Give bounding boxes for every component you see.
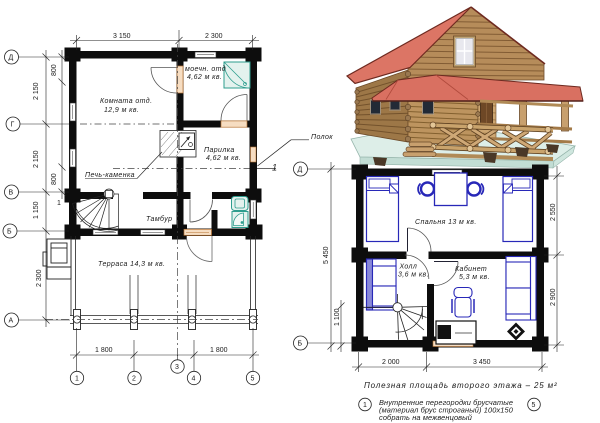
svg-text:1 150: 1 150	[33, 201, 40, 219]
svg-text:4,62 м кв.: 4,62 м кв.	[206, 155, 241, 162]
svg-text:Д: Д	[298, 167, 303, 174]
svg-text:3 150: 3 150	[113, 33, 131, 40]
svg-text:1: 1	[75, 376, 79, 383]
svg-text:Г: Г	[11, 122, 15, 129]
svg-text:1: 1	[57, 200, 61, 207]
svg-text:Б: Б	[7, 229, 12, 236]
svg-text:В: В	[9, 190, 14, 197]
svg-text:Полок: Полок	[311, 134, 333, 141]
svg-text:А: А	[9, 318, 14, 325]
svg-text:Б: Б	[298, 341, 303, 348]
svg-text:2 150: 2 150	[33, 150, 40, 168]
svg-text:5: 5	[251, 376, 255, 383]
svg-text:Холл: Холл	[399, 264, 418, 271]
svg-text:Парилка: Парилка	[204, 147, 235, 154]
svg-text:1: 1	[272, 163, 277, 173]
svg-text:Терраса 14,3 м кв.: Терраса 14,3 м кв.	[98, 261, 165, 268]
svg-text:3 450: 3 450	[473, 359, 491, 366]
svg-text:5,3 м кв.: 5,3 м кв.	[459, 274, 490, 281]
svg-text:2 300: 2 300	[36, 269, 43, 287]
svg-text:1 800: 1 800	[95, 347, 113, 354]
svg-text:Полезная площадь второго этажа: Полезная площадь второго этажа – 25 м²	[364, 381, 557, 390]
svg-text:4,62 м кв.: 4,62 м кв.	[187, 74, 222, 81]
svg-text:800: 800	[51, 64, 58, 76]
svg-text:Печь-каменка: Печь-каменка	[85, 172, 135, 179]
svg-text:2 150: 2 150	[33, 82, 40, 100]
svg-text:1: 1	[363, 402, 367, 409]
svg-text:Д: Д	[9, 55, 14, 62]
svg-text:2 000: 2 000	[382, 359, 400, 366]
svg-text:Комната отд.: Комната отд.	[100, 97, 152, 105]
svg-text:собрать на межвенцовый: собрать на межвенцовый	[379, 413, 472, 422]
svg-text:3,6 м кв.: 3,6 м кв.	[398, 272, 429, 279]
svg-text:Спальня 13 м кв.: Спальня 13 м кв.	[415, 219, 477, 226]
svg-text:5: 5	[532, 402, 536, 409]
svg-text:1 100: 1 100	[334, 308, 341, 326]
svg-text:Тамбур: Тамбур	[146, 215, 172, 223]
svg-text:3: 3	[175, 364, 179, 371]
svg-text:4: 4	[192, 376, 196, 383]
svg-text:2 550: 2 550	[550, 203, 557, 221]
svg-text:Кабинет: Кабинет	[455, 265, 487, 273]
svg-text:1 800: 1 800	[210, 347, 228, 354]
svg-text:12,9 м кв.: 12,9 м кв.	[104, 107, 139, 114]
svg-text:моечн. отд: моечн. отд	[185, 65, 226, 73]
svg-text:2 900: 2 900	[550, 288, 557, 306]
svg-text:2 300: 2 300	[205, 33, 223, 40]
svg-text:2: 2	[132, 376, 136, 383]
svg-text:800: 800	[51, 173, 58, 185]
svg-text:5 450: 5 450	[323, 246, 330, 264]
